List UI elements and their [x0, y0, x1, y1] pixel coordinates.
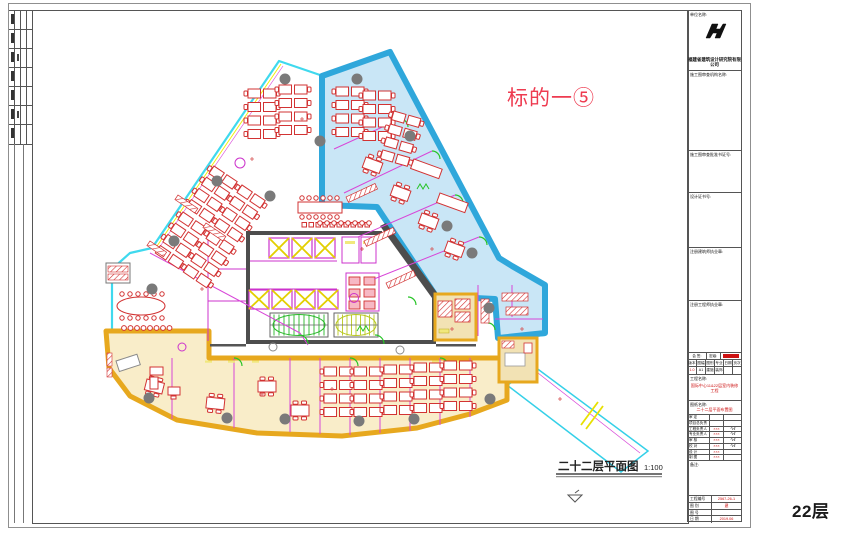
project-name: 国际中心11&22层室内装修工程: [690, 383, 739, 393]
grid-value: 装饰: [715, 367, 724, 374]
engineer-seal-label: 注册工程师执业章:: [690, 302, 723, 307]
revision-row: [9, 87, 32, 106]
revision-table: [9, 11, 32, 145]
sign-label: 会 签:: [688, 353, 707, 359]
grid-header: 页次: [733, 360, 741, 366]
company-logo: [690, 21, 739, 43]
revision-strip: [9, 10, 33, 523]
grid-header: 图幅: [697, 360, 706, 366]
target-annotation-text: 标的一⑤: [507, 86, 595, 110]
grid-header: 日期: [724, 360, 733, 366]
footer-row: 图 号: [688, 510, 741, 517]
grid-value: A1: [697, 367, 706, 374]
grid-header: 图别: [706, 360, 715, 366]
revision-row: [9, 11, 32, 30]
note-section: 备注:: [688, 461, 741, 496]
company-name: 福建省建筑设计研究院有限公司: [688, 57, 741, 68]
revision-row: [9, 125, 32, 143]
grid-value: [733, 367, 741, 374]
design-cert-label: 设计证书号:: [690, 194, 711, 199]
stairwell-2: [334, 313, 378, 337]
project-name-label: 工程名称:: [690, 376, 707, 381]
drawing-area: 标的一⑤ 二十二层平面图 1:100: [32, 10, 689, 524]
engineer-seal-section: 注册工程师执业章:: [688, 301, 741, 353]
project-name-section: 工程名称: 国际中心11&22层室内装修工程: [688, 375, 741, 401]
revision-row: [9, 106, 32, 125]
north-marker-icon: [568, 490, 582, 502]
floor-tag: 22层: [792, 497, 829, 522]
footer-row: 图 别 建: [688, 503, 741, 510]
stairwell-1: [270, 313, 328, 337]
design-cert-section: 设计证书号:: [688, 193, 741, 248]
plan-title: 二十二层平面图: [558, 459, 639, 473]
note-label: 备注:: [690, 462, 699, 467]
grid-value: 1.0: [688, 367, 697, 374]
meta-grid: 会 签: 密级: 版本 图幅 图别 专业 日期 页次 1.0 A1 建施 装饰: [688, 353, 741, 375]
footer-row: 日 期 2019.06: [688, 516, 741, 523]
drawing-name-section: 图纸名称: 二十二层平面布置图: [688, 401, 741, 415]
review-cert-section: 施工图审查批准书证号:: [688, 151, 741, 193]
orange-room-1: [435, 294, 476, 340]
architect-seal-label: 注册建筑师执业章:: [690, 249, 723, 254]
secrecy-value: [721, 353, 741, 359]
orange-room-2: [499, 338, 537, 382]
secrecy-label: 密级:: [707, 353, 721, 359]
footer-table: 工程编号 2567-26-1 图 别 建 图 号 日 期 2019.06: [688, 496, 741, 523]
grid-value: 建施: [706, 367, 715, 374]
review-org-section: 施工图审查机构名称:: [688, 71, 741, 151]
review-org-label: 施工图审查机构名称:: [690, 72, 727, 77]
revision-row: [9, 68, 32, 87]
plan-title-group: 二十二层平面图 1:100: [556, 459, 663, 502]
revision-row: [9, 30, 32, 49]
floor-plan-svg: 标的一⑤ 二十二层平面图 1:100: [33, 11, 688, 523]
page: 标的一⑤ 二十二层平面图 1:100 单位名称:: [0, 0, 858, 534]
grid-value: [724, 367, 733, 374]
unit-name-label: 单位名称:: [690, 12, 707, 17]
title-block-company-section: 单位名称: 福建省建筑设计研究院有限公司: [688, 11, 741, 71]
drawing-name: 二十二层平面布置图: [690, 407, 739, 412]
footer-row: 工程编号 2567-26-1: [688, 496, 741, 503]
signature-row: 制 图 ×××: [688, 455, 741, 460]
title-block: 单位名称: 福建省建筑设计研究院有限公司 施工图审查机构名称: 施工图审查批准书…: [687, 10, 742, 522]
revision-row: [9, 49, 32, 68]
review-cert-label: 施工图审查批准书证号:: [690, 152, 731, 157]
plan-scale: 1:100: [644, 463, 663, 472]
signature-table: 审 定 项目总负责人 工程负责人 ××× ∿ℓ: [688, 415, 741, 461]
grid-header: 专业: [715, 360, 724, 366]
drawing-sheet: 标的一⑤ 二十二层平面图 1:100 单位名称:: [8, 3, 751, 528]
grid-header: 版本: [688, 360, 697, 366]
architect-seal-section: 注册建筑师执业章:: [688, 248, 741, 301]
